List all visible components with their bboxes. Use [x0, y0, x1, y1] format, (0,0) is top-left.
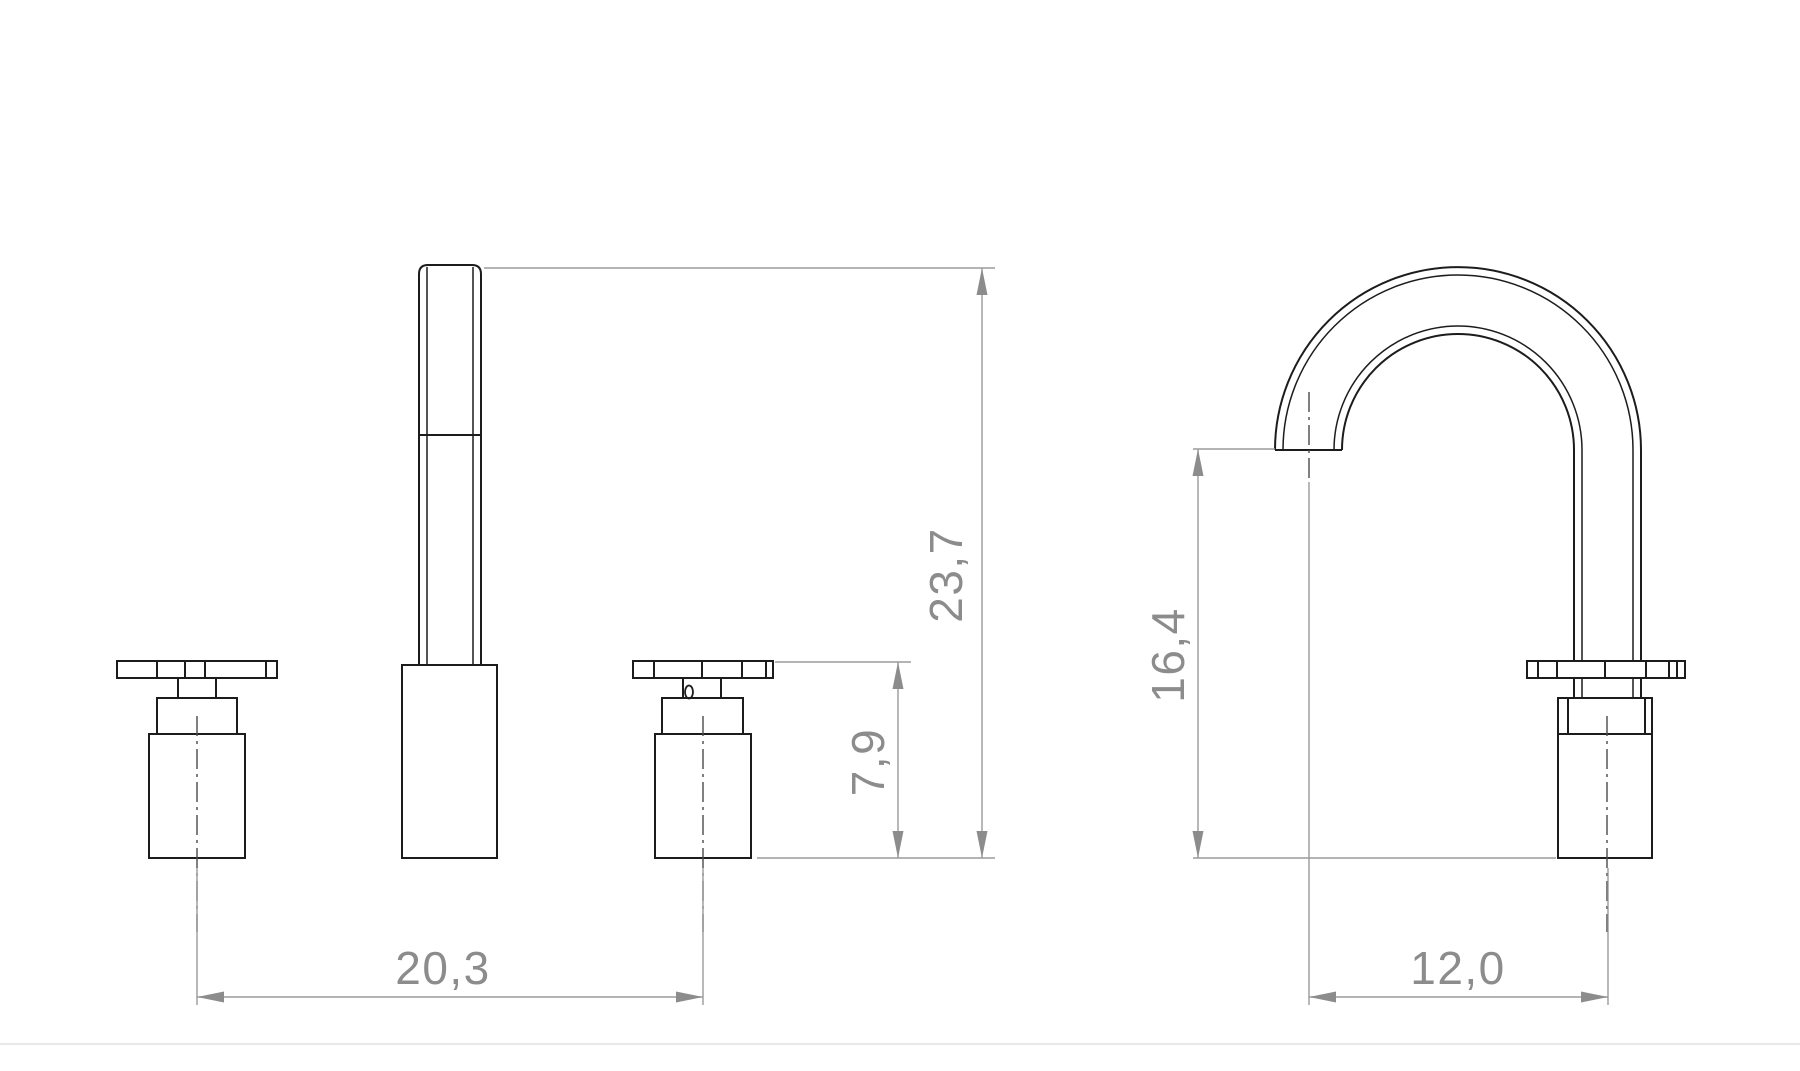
dim-label-spout-height: 16,4 — [1142, 607, 1194, 703]
spout-hole-arc — [1342, 334, 1574, 450]
arrow-left — [1309, 992, 1336, 1003]
side-view — [1275, 267, 1685, 932]
front-view — [117, 265, 773, 932]
spout-downtube-lower-walls — [1582, 678, 1633, 698]
arrow-up — [893, 662, 904, 689]
arrow-right — [1581, 992, 1608, 1003]
gooseneck-spout — [1275, 267, 1641, 698]
right-handle-bar-segments — [654, 661, 766, 678]
dimension-total-height: 23,7 — [484, 268, 995, 858]
spout-outer-arc — [1275, 267, 1641, 450]
spout-outer-wall-arc — [1283, 275, 1633, 450]
faucet-technical-drawing: 23,7 7,9 20,3 — [0, 0, 1800, 1071]
side-handle-bar-segments — [1538, 661, 1677, 678]
front-spout — [402, 265, 497, 858]
front-view-dimensions: 23,7 7,9 20,3 — [197, 268, 995, 1005]
right-handle-stem-detail — [685, 686, 693, 699]
left-handle-bar-segments — [157, 661, 266, 678]
spout-downtube-lower — [1574, 678, 1641, 698]
spout-column-outline — [419, 265, 481, 665]
arrow-down — [1193, 831, 1204, 858]
right-handle-stem — [683, 678, 721, 698]
spout-column-inner-walls — [427, 267, 473, 665]
spout-downtube-walls — [1582, 450, 1633, 661]
dimension-spout-reach: 12,0 — [1309, 482, 1608, 1005]
spout-base — [402, 665, 497, 858]
dim-label-handle-height: 7,9 — [842, 728, 894, 796]
arrow-right — [676, 992, 703, 1003]
dim-label-total-height: 23,7 — [920, 527, 972, 623]
dim-label-spout-reach: 12,0 — [1410, 942, 1506, 994]
side-handle-body — [1558, 734, 1652, 858]
arrow-down — [893, 831, 904, 858]
arrow-up — [977, 268, 988, 295]
left-handle-bar — [117, 661, 277, 678]
side-handle-bonnet — [1558, 698, 1652, 734]
side-view-dimensions: 16,4 12,0 — [1142, 449, 1608, 1005]
left-handle-stem — [178, 678, 216, 698]
dimension-handle-height: 7,9 — [775, 662, 911, 858]
drawing-canvas: 23,7 7,9 20,3 — [0, 0, 1800, 1071]
arrow-left — [197, 992, 224, 1003]
dimension-handle-spacing: 20,3 — [197, 868, 703, 1005]
spout-hole-wall-arc — [1334, 326, 1582, 450]
dimension-spout-height: 16,4 — [1142, 449, 1556, 858]
dim-label-handle-spacing: 20,3 — [395, 942, 491, 994]
side-handle — [1527, 661, 1685, 932]
spout-downtube — [1574, 450, 1641, 661]
arrow-up — [1193, 449, 1204, 476]
arrow-down — [977, 831, 988, 858]
